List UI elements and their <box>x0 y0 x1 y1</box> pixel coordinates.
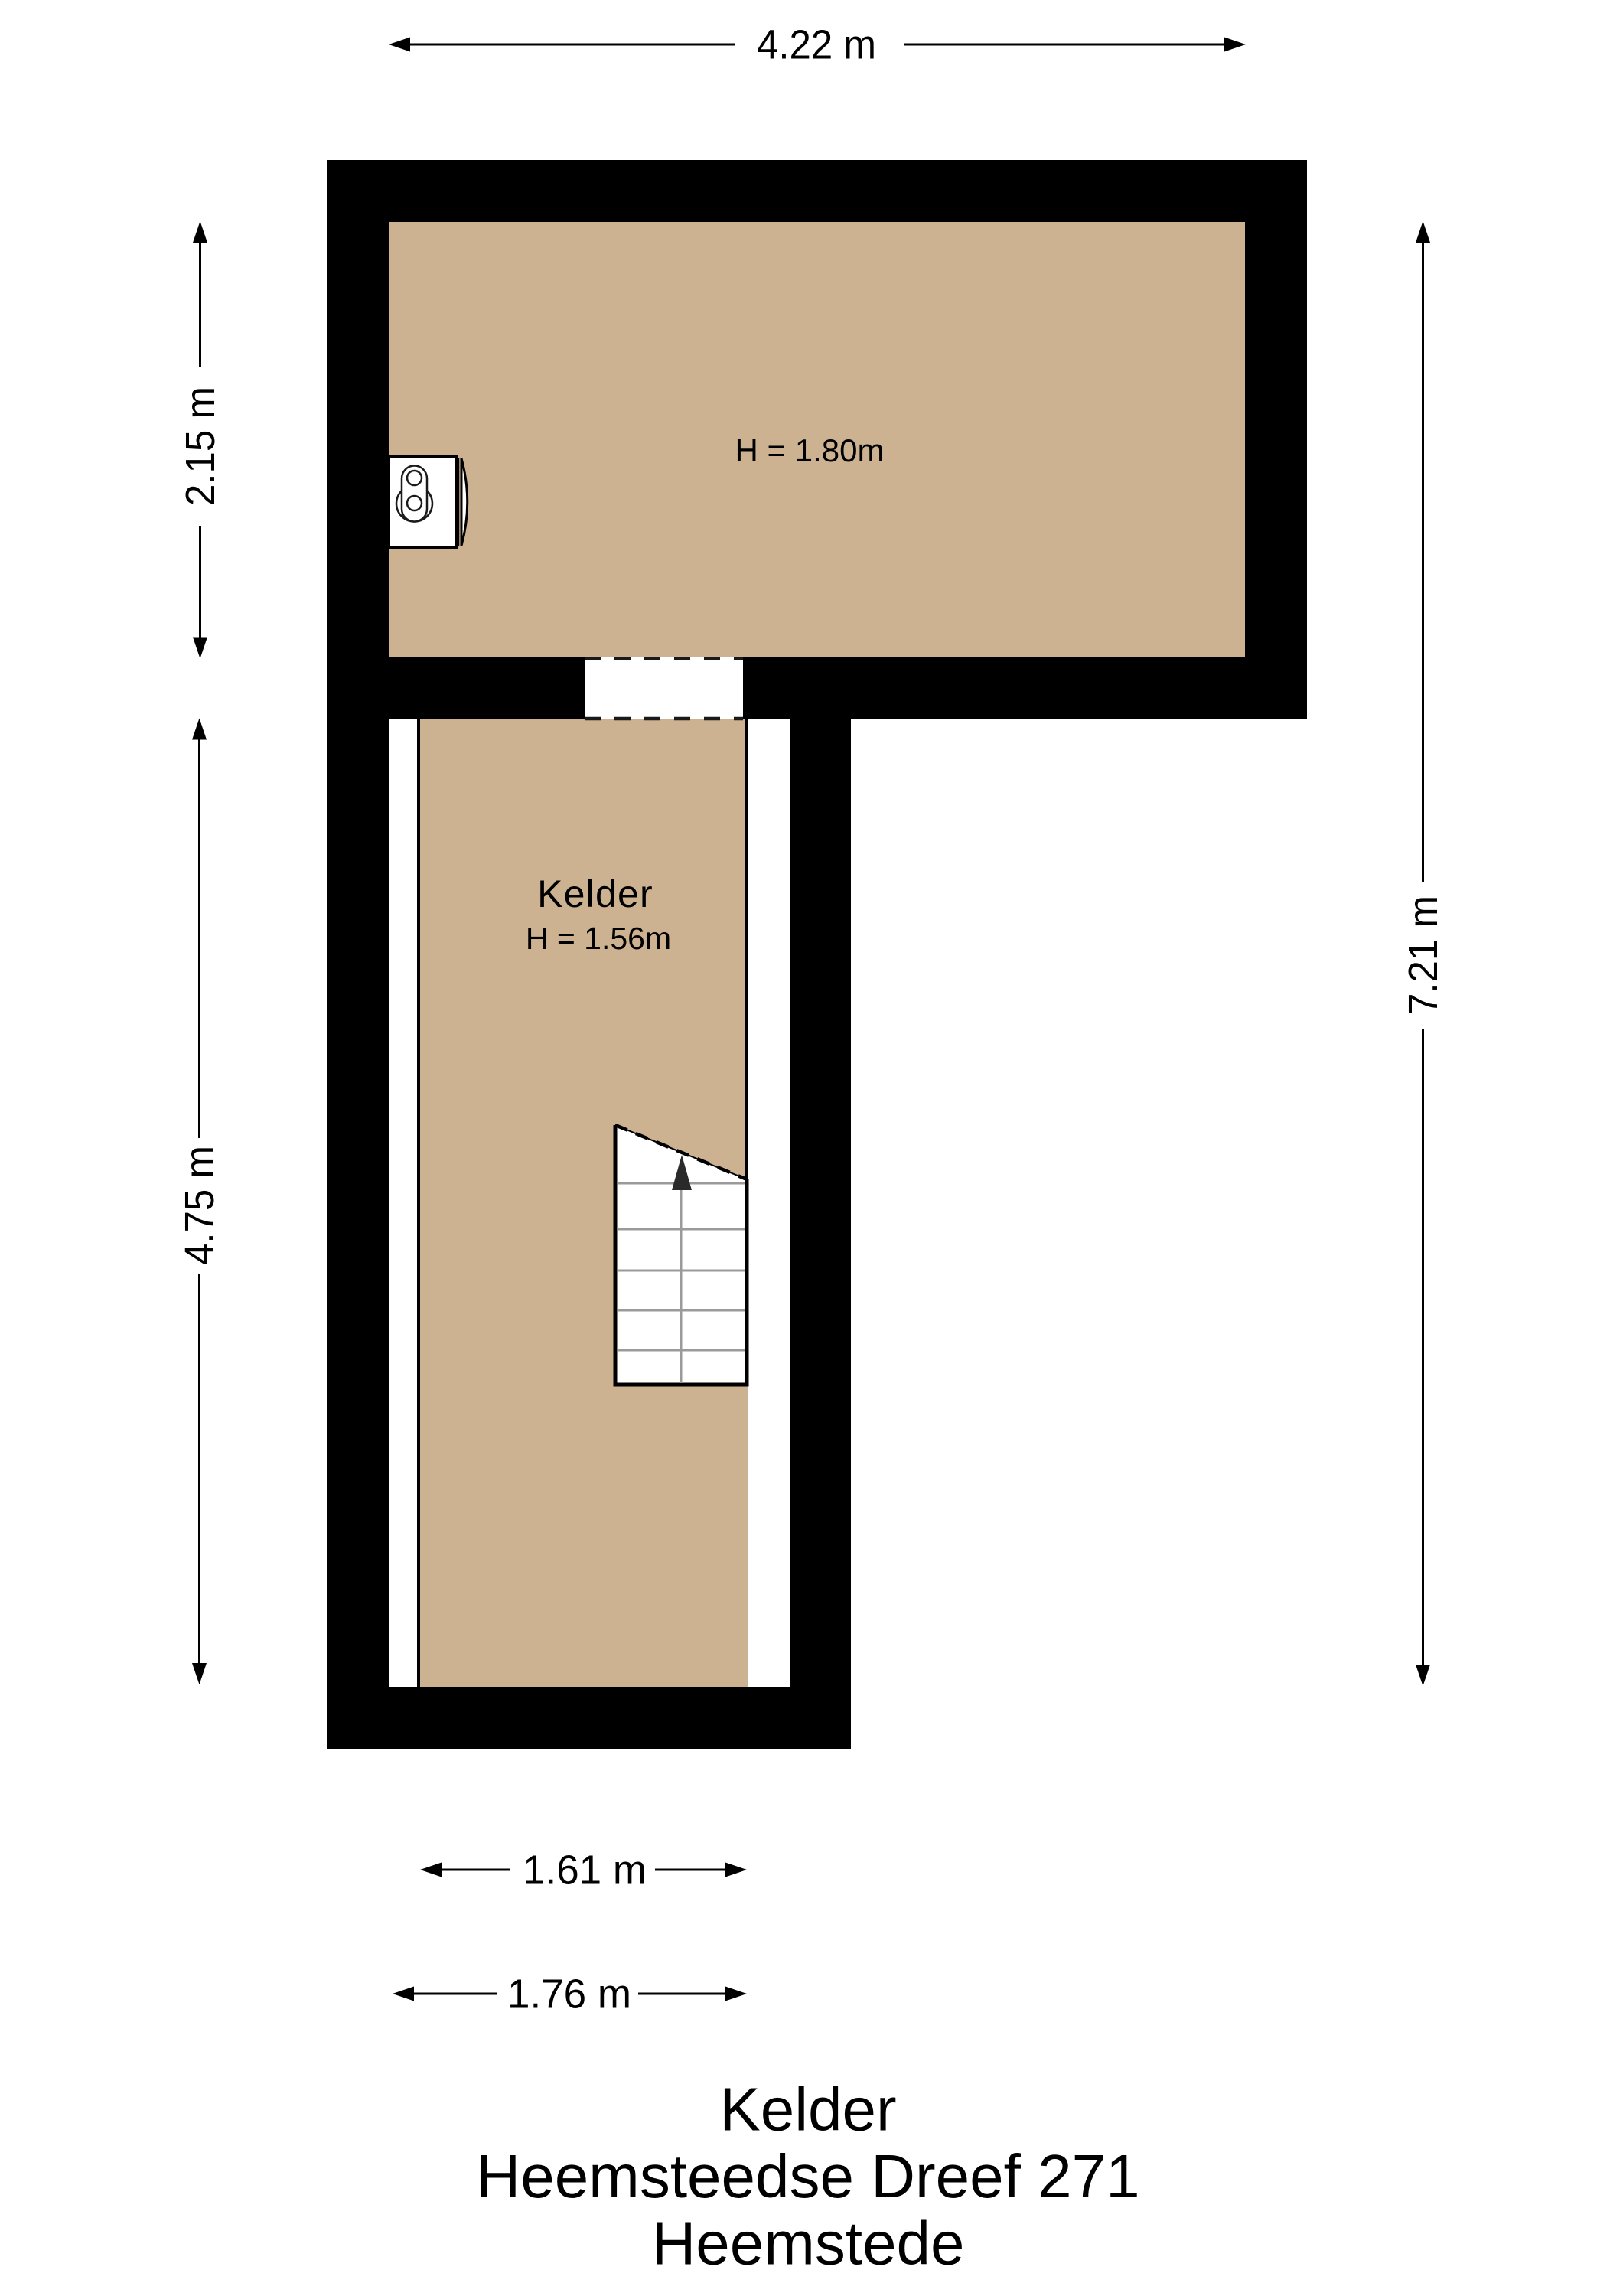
svg-text:2.15 m: 2.15 m <box>178 386 223 506</box>
svg-text:7.21 m: 7.21 m <box>1400 895 1446 1015</box>
svg-text:H = 1.56m: H = 1.56m <box>526 921 671 956</box>
svg-text:H = 1.80m: H = 1.80m <box>735 432 885 468</box>
svg-text:Heemsteedse Dreef 271: Heemsteedse Dreef 271 <box>476 2142 1139 2210</box>
svg-text:Kelder: Kelder <box>719 2076 896 2144</box>
svg-text:4.22 m: 4.22 m <box>757 22 876 68</box>
svg-text:Kelder: Kelder <box>537 872 653 915</box>
svg-text:Heemstede: Heemstede <box>651 2210 964 2278</box>
svg-text:1.76 m: 1.76 m <box>507 1971 631 2017</box>
svg-text:4.75 m: 4.75 m <box>177 1146 223 1265</box>
svg-text:1.61 m: 1.61 m <box>523 1848 647 1893</box>
